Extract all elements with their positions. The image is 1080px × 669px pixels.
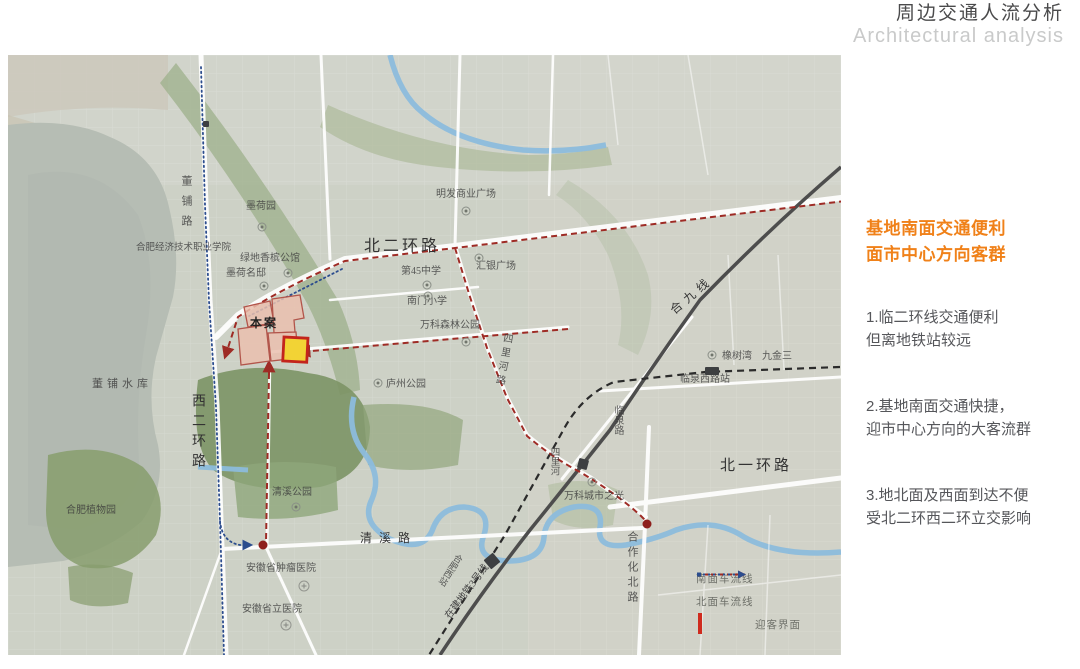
map-label: 董铺水库 bbox=[92, 379, 152, 390]
slide: { "title": { "zh": "周边交通人流分析", "en": "Ar… bbox=[0, 0, 1080, 669]
park-icon bbox=[475, 254, 484, 263]
point-2-line2: 迎市中心方向的大客流群 bbox=[866, 421, 1031, 438]
slide-title-block: 周边交通人流分析 Architectural analysis bbox=[853, 3, 1064, 47]
legend-label: 北面车流线 bbox=[696, 594, 754, 609]
map-label: 第45中学 bbox=[401, 267, 441, 277]
page-subtitle: Architectural analysis bbox=[853, 25, 1064, 47]
hospital-icon bbox=[299, 581, 310, 592]
point-3-line1: 3.地北面及西面到达不便 bbox=[866, 487, 1029, 504]
point-1-line1: 1.临二环线交通便利 bbox=[866, 309, 999, 326]
site-face-swatch-icon bbox=[698, 613, 702, 634]
metro-station-icon bbox=[705, 367, 719, 375]
panel-point-2: 2.基地南面交通快捷， 迎市中心方向的大客流群 bbox=[866, 396, 1071, 441]
flow-node-icon bbox=[643, 520, 652, 529]
map-label: 西二环路 bbox=[190, 393, 204, 473]
map-label: 合肥植物园 bbox=[66, 506, 116, 516]
map-label: 庐州公园 bbox=[386, 380, 426, 390]
map-label: 汇银广场 bbox=[476, 262, 516, 272]
panel-heading-line1: 基地南面交通便利 bbox=[866, 219, 1006, 238]
map-label: 合肥西站 bbox=[436, 552, 463, 587]
map-label: 合肥经济技术职业学院 bbox=[136, 244, 231, 254]
park-icon bbox=[284, 269, 293, 278]
metro-station-icon bbox=[577, 458, 589, 470]
map-label: 万科城市之光 bbox=[564, 492, 624, 502]
park-icon bbox=[423, 281, 432, 290]
legend-item-north-flow: 北面车流线 bbox=[696, 592, 836, 610]
page-title: 周边交通人流分析 bbox=[853, 3, 1064, 25]
map-label: 清溪路 bbox=[360, 532, 417, 544]
map-label: 清溪公园 bbox=[272, 488, 312, 498]
map-label: 安徽省肿瘤医院 bbox=[246, 564, 316, 574]
map-label: 临泉西路站 bbox=[680, 375, 730, 385]
point-1-line2: 但离地铁站较远 bbox=[866, 332, 971, 349]
panel-point-1: 1.临二环线交通便利 但离地铁站较远 bbox=[866, 307, 1071, 352]
map-label: 北二环路 bbox=[364, 239, 440, 255]
analysis-panel: 基地南面交通便利 面市中心方向客群 1.临二环线交通便利 但离地铁站较远 2.基… bbox=[866, 216, 1071, 574]
map-label: 墨荷名邸 bbox=[226, 269, 266, 279]
map-label: 墨荷园 bbox=[246, 202, 276, 212]
map-canvas: 董铺路墨荷园合肥经济技术职业学院绿地香槟公馆墨荷名邸北二环路明发商业广场第45中… bbox=[8, 55, 841, 655]
point-3-line2: 受北二环西二环立交影响 bbox=[866, 510, 1031, 527]
point-2-line1: 2.基地南面交通快捷， bbox=[866, 398, 1014, 415]
map-label: 四里河 bbox=[548, 447, 558, 476]
park-icon bbox=[258, 223, 267, 232]
map-label: 本案 bbox=[250, 317, 278, 329]
legend-label: 迎客界面 bbox=[755, 617, 801, 632]
map-label: 临泉路 bbox=[612, 405, 622, 435]
park-icon bbox=[260, 282, 269, 291]
map-label: 合作化北路 bbox=[626, 531, 637, 606]
map-label: 北一环路 bbox=[720, 459, 792, 474]
map-label: 合九线 bbox=[668, 274, 715, 316]
map-label: 董铺路 bbox=[180, 175, 191, 235]
legend-item-site-face: 迎客界面 bbox=[696, 615, 836, 633]
map-label: 明发商业广场 bbox=[436, 190, 496, 200]
park-icon bbox=[708, 351, 717, 360]
map-legend: 南面车流线 北面车流线 迎客界面 bbox=[696, 569, 836, 638]
park-icon bbox=[292, 503, 301, 512]
panel-heading-line2: 面市中心方向客群 bbox=[866, 245, 1006, 264]
panel-point-3: 3.地北面及西面到达不便 受北二环西二环立交影响 bbox=[866, 485, 1071, 530]
park-icon bbox=[462, 338, 471, 347]
park-icon bbox=[374, 379, 383, 388]
park-icon bbox=[588, 478, 597, 487]
map-label: 绿地香槟公馆 bbox=[240, 254, 300, 264]
map-label: 万科森林公园 bbox=[420, 321, 480, 331]
panel-heading: 基地南面交通便利 面市中心方向客群 bbox=[866, 216, 1071, 267]
map-label: 安徽省立医院 bbox=[242, 605, 302, 615]
north-flow-swatch-icon bbox=[696, 569, 748, 579]
hospital-icon bbox=[281, 620, 292, 631]
park-icon bbox=[462, 207, 471, 216]
map-label: 四里河路 bbox=[492, 332, 512, 389]
metro-station-icon bbox=[203, 121, 209, 127]
map-label: 九金三 bbox=[762, 352, 792, 362]
park-icon bbox=[424, 292, 433, 301]
flow-node-icon bbox=[259, 541, 268, 550]
map-labels-layer: 董铺路墨荷园合肥经济技术职业学院绿地香槟公馆墨荷名邸北二环路明发商业广场第45中… bbox=[8, 55, 841, 655]
map-label: 橡树湾 bbox=[722, 352, 752, 362]
